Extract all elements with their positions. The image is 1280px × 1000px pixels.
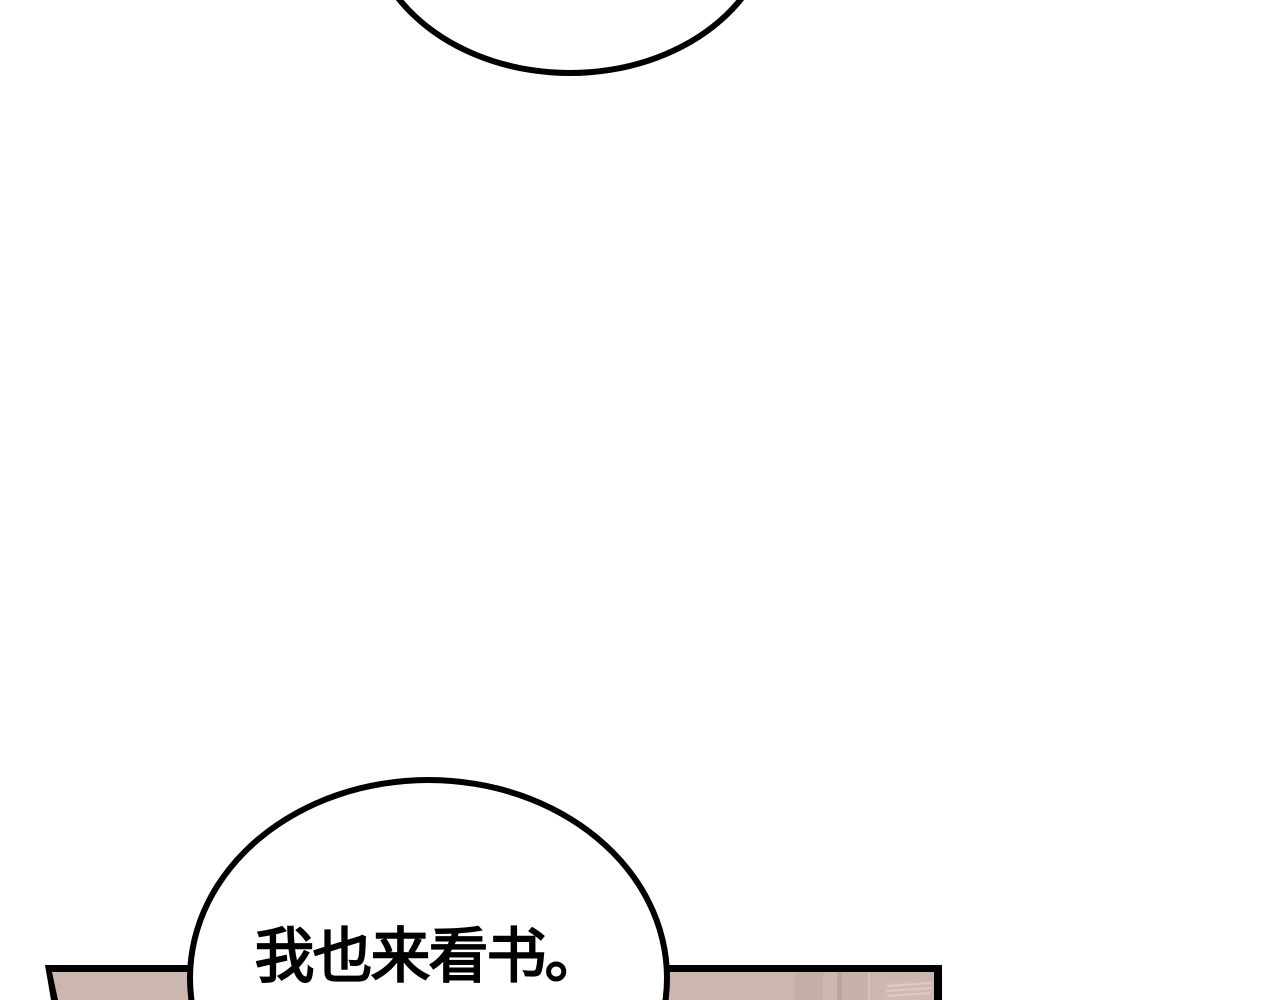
speech-bubble-dialogue-text: 我也来看书。 xyxy=(193,925,664,990)
bottom-panel-artwork xyxy=(0,0,1280,1000)
webtoon-strip-canvas: 我也来看书。 xyxy=(0,0,1280,1000)
panel-shading-soft xyxy=(842,972,869,1000)
panel-highlight-line xyxy=(868,972,870,1000)
panel-shading-band xyxy=(795,972,823,1000)
panel-shading-seam xyxy=(837,972,842,1000)
